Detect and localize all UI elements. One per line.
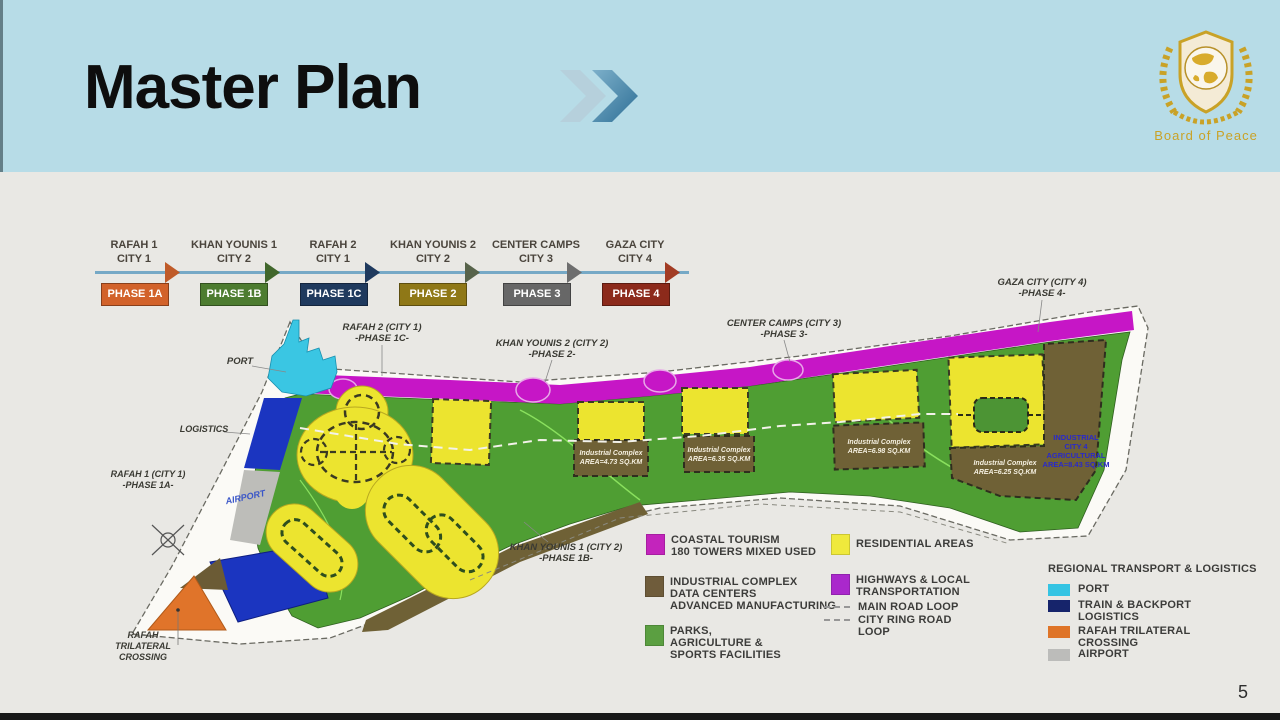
svg-text:AREA=6.35 SQ.KM: AREA=6.35 SQ.KM: [687, 456, 751, 463]
compass-icon: [152, 525, 184, 555]
industrial-label-1: Industrial Complex: [579, 450, 643, 457]
regional-airport: AIRPORT: [1048, 648, 1129, 661]
svg-text:AREA=4.73 SQ.KM: AREA=4.73 SQ.KM: [579, 459, 643, 466]
svg-text:CITY 4: CITY 4: [1064, 442, 1088, 451]
svg-text:AREA=8.43 SQ.KM: AREA=8.43 SQ.KM: [1043, 460, 1110, 469]
svg-text:-PHASE 4-: -PHASE 4-: [1019, 288, 1066, 299]
train-swatch: [1048, 600, 1070, 612]
map-label-rafah1: RAFAH 1 (CITY 1): [111, 469, 186, 479]
legend-coastal-tourism: COASTAL TOURISM180 TOWERS MIXED USED: [646, 534, 816, 558]
svg-text:-PHASE 2-: -PHASE 2-: [529, 349, 576, 360]
svg-text:AREA=6.25 SQ.KM: AREA=6.25 SQ.KM: [973, 469, 1037, 476]
regional-crossing: RAFAH TRILATERALCROSSING: [1048, 625, 1190, 649]
parks-swatch: [645, 625, 664, 646]
regional-train: TRAIN & BACKPORTLOGISTICS: [1048, 599, 1191, 623]
regional-legend-title: REGIONAL TRANSPORT & LOGISTICS: [1048, 563, 1257, 575]
svg-text:-PHASE 1C-: -PHASE 1C-: [355, 333, 409, 344]
regional-port: PORT: [1048, 583, 1109, 596]
svg-text:TRILATERAL: TRILATERAL: [115, 641, 171, 651]
svg-text:CROSSING: CROSSING: [119, 652, 167, 662]
ring-road-dash-icon: [824, 619, 850, 621]
legend-residential: RESIDENTIAL AREAS: [831, 534, 974, 555]
legend-parks: PARKS,AGRICULTURE &SPORTS FACILITIES: [645, 625, 781, 661]
highways-swatch: [831, 574, 850, 595]
legend-ring-road: CITY RING ROADLOOP: [824, 614, 952, 638]
green-center-block: [974, 398, 1028, 432]
svg-text:-PHASE 1B-: -PHASE 1B-: [539, 553, 593, 564]
coastal-swatch: [646, 534, 665, 555]
industrial-label-3: Industrial Complex: [847, 439, 911, 446]
map-label-ky2: KHAN YOUNIS 2 (CITY 2): [496, 338, 609, 349]
map-label-rafah2: RAFAH 2 (CITY 1): [342, 322, 421, 333]
map-label-logistics: LOGISTICS: [180, 424, 229, 434]
industrial-label-4: Industrial Complex: [973, 460, 1037, 467]
port-swatch: [1048, 584, 1070, 596]
legend-main-road: MAIN ROAD LOOP: [824, 601, 959, 613]
port-area: [268, 320, 337, 396]
map-label-center-camps: CENTER CAMPS (CITY 3): [727, 318, 841, 329]
svg-text:-PHASE 3-: -PHASE 3-: [761, 329, 808, 340]
airport-swatch: [1048, 649, 1070, 661]
industrial-swatch: [645, 576, 664, 597]
page-number: 5: [1238, 682, 1248, 703]
residential-swatch: [831, 534, 850, 555]
bottom-bar: [0, 713, 1280, 720]
map-label-port: PORT: [227, 356, 254, 367]
legend-industrial: INDUSTRIAL COMPLEXDATA CENTERSADVANCED M…: [645, 576, 836, 612]
svg-text:AREA=6.98 SQ.KM: AREA=6.98 SQ.KM: [847, 448, 911, 455]
map-label-ky1: KHAN YOUNIS 1 (CITY 2): [510, 542, 623, 553]
legend-highways: HIGHWAYS & LOCALTRANSPORTATION: [831, 574, 970, 598]
main-road-dash-icon: [824, 606, 850, 608]
svg-text:AGRICULTURAL: AGRICULTURAL: [1046, 451, 1105, 460]
svg-text:-PHASE 1A-: -PHASE 1A-: [122, 480, 173, 490]
crossing-swatch: [1048, 626, 1070, 638]
industrial-city-label: INDUSTRIAL: [1053, 433, 1099, 442]
map-label-gaza-city: GAZA CITY (CITY 4): [997, 277, 1086, 288]
map-label-rafah-crossing: RAFAH: [128, 630, 159, 640]
industrial-label-2: Industrial Complex: [687, 447, 751, 454]
